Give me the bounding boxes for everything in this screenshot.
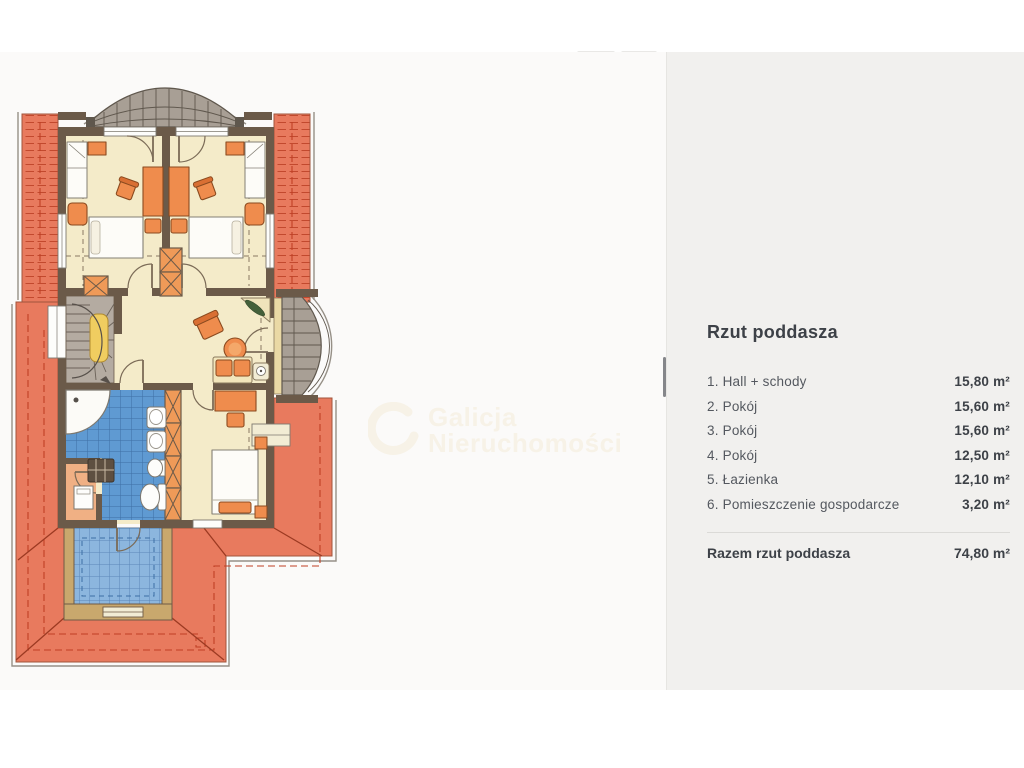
room-label: 3. Pokój [707, 423, 757, 438]
room-area: 15,80 m² [954, 374, 1010, 389]
room-row: 2. Pokój 15,60 m² [707, 399, 1010, 424]
bidet [148, 459, 163, 477]
room-label: 2. Pokój [707, 399, 757, 414]
info-panel: Rzut poddasza 1. Hall + schody 15,80 m² … [667, 104, 1024, 742]
room-list: 1. Hall + schody 15,80 m² 2. Pokój 15,60… [707, 374, 1010, 521]
total-row: Razem rzut poddasza 74,80 m² [707, 545, 1010, 561]
plan-pane: Galicja Nieruchomości [0, 52, 667, 690]
page-title: Rzut poddasza [707, 322, 1010, 343]
content-band: Galicja Nieruchomości [0, 52, 1024, 690]
room-label: 5. Łazienka [707, 472, 778, 487]
total-label: Razem rzut poddasza [707, 545, 850, 561]
balcony-bottom [64, 528, 172, 620]
room-area: 3,20 m² [962, 497, 1010, 512]
room-area: 12,50 m² [954, 448, 1010, 463]
canopy-top [58, 88, 272, 127]
total-area: 74,80 m² [954, 545, 1010, 561]
room-row: 4. Pokój 12,50 m² [707, 448, 1010, 473]
balcony-right [276, 289, 329, 403]
stairs [66, 296, 114, 384]
floor-plan [0, 52, 667, 690]
room-area: 15,60 m² [954, 399, 1010, 414]
room-row: 6. Pomieszczenie gospodarcze 3,20 m² [707, 497, 1010, 522]
panel-divider [707, 532, 1010, 533]
room-row: 1. Hall + schody 15,80 m² [707, 374, 1010, 399]
toilet [141, 484, 160, 510]
room-area: 15,60 m² [954, 423, 1010, 438]
floor-plan-svg [0, 52, 667, 690]
room-label: 1. Hall + schody [707, 374, 807, 389]
room-area: 12,10 m² [954, 472, 1010, 487]
room-row: 5. Łazienka 12,10 m² [707, 472, 1010, 497]
room-label: 6. Pomieszczenie gospodarcze [707, 497, 899, 512]
room-label: 4. Pokój [707, 448, 757, 463]
radiator [88, 459, 114, 482]
room-row: 3. Pokój 15,60 m² [707, 423, 1010, 448]
